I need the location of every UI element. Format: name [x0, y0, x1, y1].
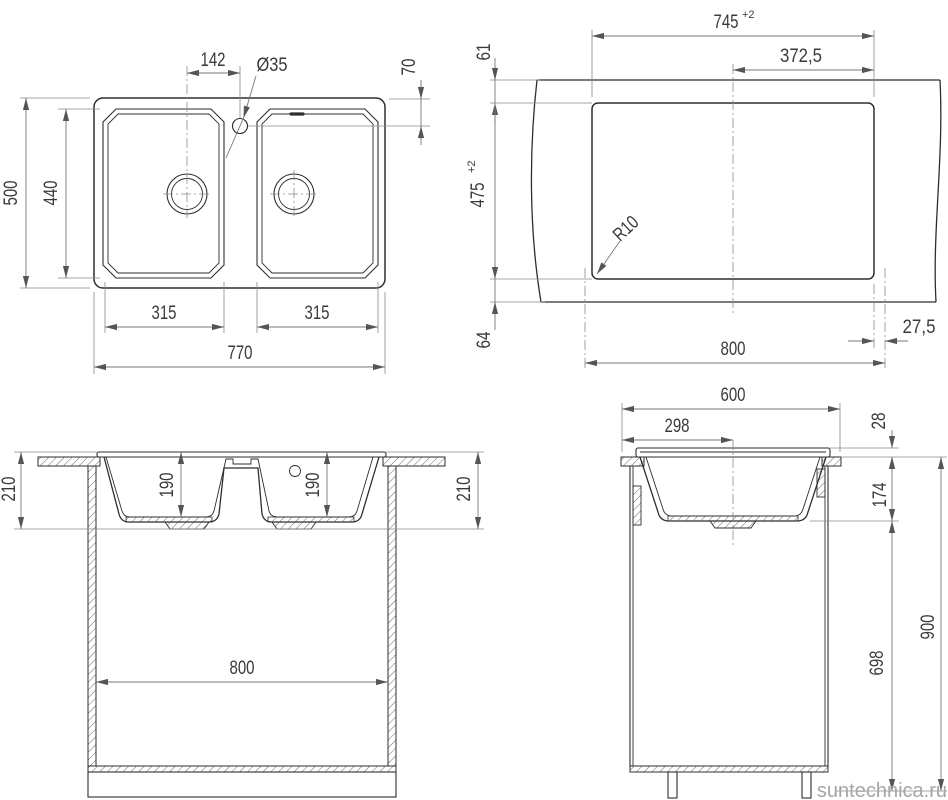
dim-475-tolerance: +2: [466, 160, 478, 173]
top-view: 142 Ø35 70 500 440: [1, 50, 430, 374]
dim-64-label: 64: [474, 331, 495, 348]
dim-r10-label: R10: [609, 212, 643, 246]
dim-800-front-label: 800: [230, 658, 255, 679]
cabinet-floor: [88, 766, 396, 772]
dim-475-label: 475: [468, 183, 489, 208]
dim-side-offset: 27,5: [848, 317, 936, 341]
drawing-svg: 142 Ø35 70 500 440: [0, 0, 948, 800]
front-view: 210 190 190 800 210: [0, 452, 484, 797]
dim-800-cutout-label: 800: [721, 339, 746, 360]
dim-right-bowl-width: 315: [257, 282, 378, 333]
sink-body-outer: [104, 457, 379, 522]
dim-28-label: 28: [869, 413, 890, 430]
dim-698-label: 698: [867, 651, 888, 676]
dim-sink-height-left: 210: [0, 452, 21, 529]
dim-70-label: 70: [399, 59, 420, 76]
dim-bowls-depth: 440: [41, 109, 100, 278]
countertop-outline: [531, 80, 940, 302]
dim-190-left-label: 190: [157, 473, 178, 498]
dim-298-label: 298: [665, 416, 690, 437]
sink-technical-drawing: 142 Ø35 70 500 440: [0, 0, 948, 800]
dim-315-left-label: 315: [152, 303, 177, 324]
watermark: suntechnica.ru: [817, 780, 947, 800]
cabinet-rail-right: [817, 469, 825, 497]
dim-440-label: 440: [41, 181, 62, 206]
dim-right-bowl-depth: 190: [303, 452, 327, 517]
dim-drain-center-offset: 298: [622, 416, 733, 440]
sink-rim: [97, 452, 386, 457]
dim-left-bowl-depth: 190: [157, 452, 181, 517]
dim-bottom-margin: 64: [474, 279, 592, 349]
cabinet-wall-right: [388, 466, 396, 766]
cabinet-wall-left: [88, 466, 96, 766]
dim-corner-radius: R10: [597, 212, 643, 274]
dim-overall-width: 770: [94, 292, 385, 374]
dim-745-label: 745: [714, 12, 739, 33]
right-drain-recess: [272, 522, 316, 529]
dim-cabinet-total-height: 900: [836, 457, 947, 791]
dim-900-label: 900: [918, 615, 939, 640]
dim-rim-height: 28: [830, 413, 947, 472]
dim-cutout-half-width: 372,5: [733, 46, 874, 70]
countertop-left: [38, 457, 100, 466]
cabinet-leg-left: [668, 772, 677, 798]
dim-770-label: 770: [228, 343, 253, 364]
cabinet-rail-left: [633, 486, 641, 525]
sink-body-inner: [106, 457, 373, 517]
side-view: 600 298 28 174 698 900: [621, 385, 947, 798]
dim-275-label: 27,5: [903, 317, 936, 338]
dim-315-right-label: 315: [305, 303, 330, 324]
dim-sink-height-right: 210: [454, 452, 478, 529]
left-bowl-floor: [126, 517, 212, 522]
dim-745-tolerance: +2: [742, 9, 755, 21]
dim-under-bowl-clearance: 698: [867, 521, 892, 791]
dim-600-label: 600: [721, 385, 746, 406]
dim-cutout-depth: 475 +2: [466, 103, 495, 279]
dim-cabinet-width-projection: 800: [585, 268, 885, 368]
cabinet-leg-right: [802, 772, 811, 798]
left-drain-recess: [165, 522, 209, 529]
dim-190-right-label: 190: [303, 473, 324, 498]
dim-210-left-label: 210: [0, 477, 20, 502]
dim-210-right-label: 210: [454, 477, 475, 502]
dim-d35-label: Ø35: [257, 55, 288, 76]
dim-174-label: 174: [870, 482, 891, 507]
right-bowl-floor: [268, 517, 354, 522]
dim-500-label: 500: [1, 181, 22, 206]
cabinet-plinth: [88, 772, 396, 797]
countertop-right: [383, 457, 445, 466]
cabinet-floor-side: [630, 766, 828, 772]
dim-372-label: 372,5: [780, 46, 822, 67]
dim-142-label: 142: [201, 50, 226, 71]
dim-61-label: 61: [474, 44, 495, 61]
cutout-view: 745 +2 372,5 61 475 +2: [466, 9, 941, 368]
overflow-hole-section: [290, 466, 301, 477]
dim-cabinet-inner-width: 800: [96, 658, 388, 682]
dim-left-bowl-width: 315: [105, 282, 224, 333]
dim-countertop-depth: 600: [622, 385, 840, 452]
dim-top-margin: 61: [474, 44, 592, 126]
